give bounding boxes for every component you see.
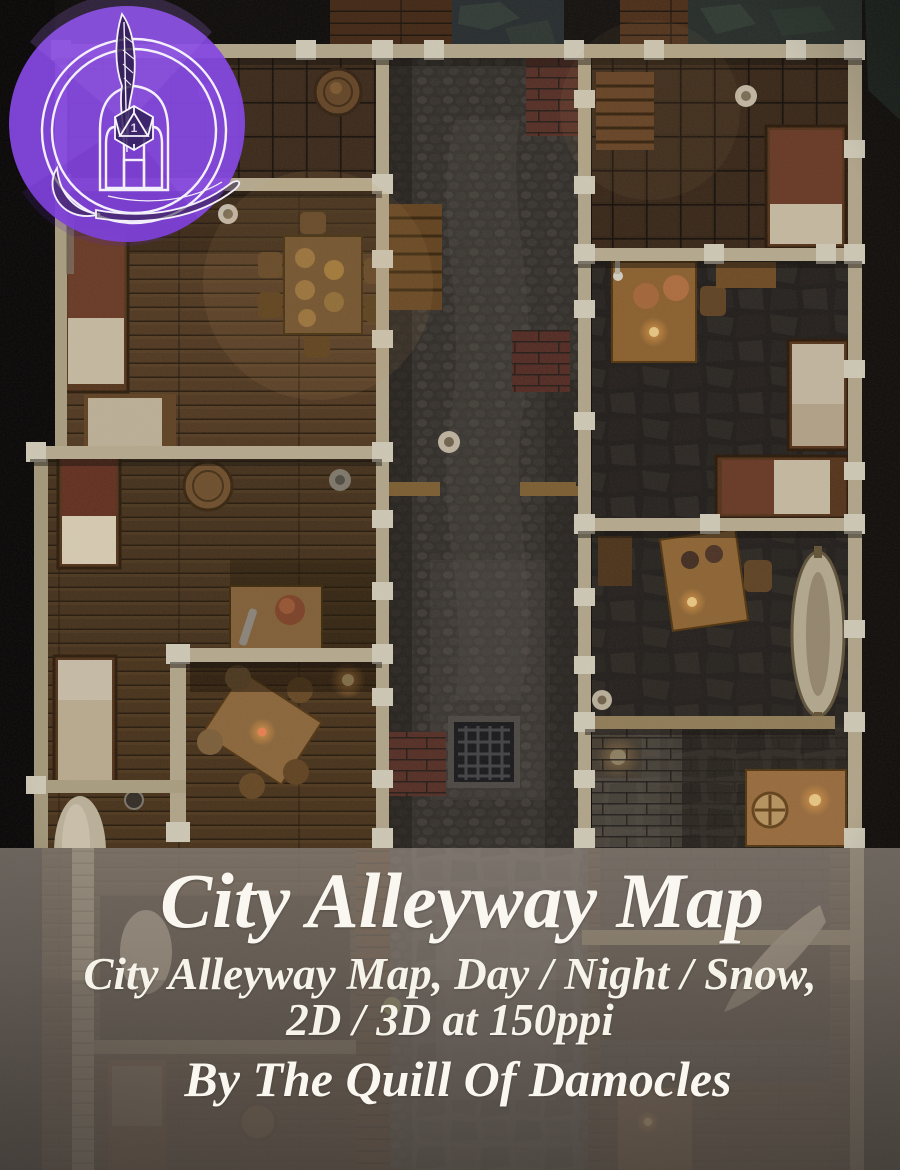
svg-text:1: 1 — [131, 121, 138, 135]
